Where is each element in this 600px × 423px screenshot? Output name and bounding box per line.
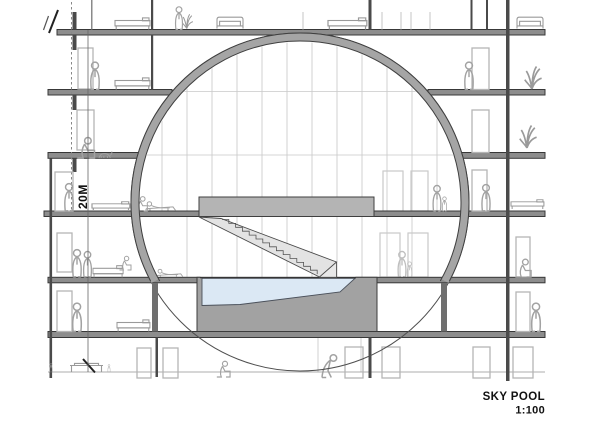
background-figure xyxy=(398,251,406,277)
sunbather-on-deck xyxy=(146,202,176,211)
floor-slab xyxy=(461,153,545,159)
left-facade-wall xyxy=(50,159,53,379)
floor-slab xyxy=(48,277,200,283)
floor-slab xyxy=(48,90,172,96)
right-main-wall xyxy=(506,0,510,381)
floor-slab xyxy=(428,90,545,96)
floor-slab xyxy=(48,332,545,338)
dimension-label-20m: 20M xyxy=(76,184,90,209)
architectural-section-drawing: 20M SKY POOL 1:100 xyxy=(0,0,600,423)
ring-support-wall-left xyxy=(152,283,158,332)
drawing-scale: 1:100 xyxy=(515,405,545,417)
ring-support-wall-right xyxy=(441,283,447,332)
sunbather-pool-deck xyxy=(157,269,183,277)
drawing-title: SKY POOL xyxy=(483,391,545,403)
pool-platform xyxy=(199,197,374,217)
sky-pool-section: 20M SKY POOL 1:100 xyxy=(0,0,600,423)
sphere-structural-ring xyxy=(131,33,469,281)
stair-stringer xyxy=(199,217,337,277)
sphere-interior-gridlines xyxy=(140,32,460,277)
